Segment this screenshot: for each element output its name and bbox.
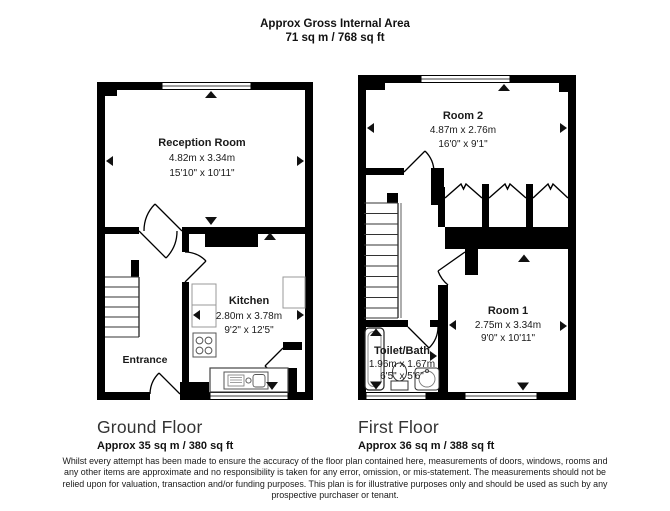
arrow-right-icon bbox=[560, 123, 567, 133]
closet-bifold-door bbox=[445, 184, 482, 198]
kitchen-counter-right bbox=[283, 277, 305, 308]
reception-room-name: Reception Room bbox=[158, 137, 246, 149]
first-floor-title: First Floor bbox=[358, 417, 439, 438]
room2-imperial: 16'0" x 9'1" bbox=[438, 139, 488, 150]
plan-title-line2: 71 sq m / 768 sq ft bbox=[0, 31, 670, 45]
room2-name: Room 2 bbox=[443, 110, 483, 122]
ground-floor-plan: Reception Room 4.82m x 3.34m 15'10" x 10… bbox=[97, 82, 313, 400]
ground-floor-area: Approx 35 sq m / 380 sq ft bbox=[97, 440, 233, 452]
kitchen-sink-counter bbox=[210, 368, 288, 392]
room2-window bbox=[421, 76, 510, 83]
room1-window bbox=[465, 393, 537, 400]
disclaimer-line4: prospective purchaser or tenant. bbox=[15, 490, 655, 501]
disclaimer-text: Whilst every attempt has been made to en… bbox=[15, 456, 655, 502]
arrow-left-icon bbox=[106, 156, 113, 166]
arrow-left-icon bbox=[367, 123, 374, 133]
closet-bifold-door bbox=[533, 184, 568, 198]
kitchen-imperial: 9'2" x 12'5" bbox=[224, 325, 274, 336]
ground-floor-stairs bbox=[105, 277, 139, 337]
first-floor-stairs bbox=[364, 203, 401, 318]
toilet-bath-metric: 1.96m x 1.67m bbox=[369, 359, 435, 370]
disclaimer-line3: relied upon for valuation, transaction a… bbox=[15, 479, 655, 490]
room2-metric: 4.87m x 2.76m bbox=[430, 125, 496, 136]
arrow-left-icon bbox=[449, 320, 456, 330]
entrance-name: Entrance bbox=[123, 354, 168, 366]
arrow-right-icon bbox=[297, 310, 304, 320]
arrow-right-icon bbox=[297, 156, 304, 166]
kitchen-door bbox=[185, 252, 206, 282]
kitchen-window bbox=[210, 393, 288, 400]
reception-room-imperial: 15'10" x 10'11" bbox=[169, 168, 235, 179]
kitchen-hob bbox=[193, 333, 216, 357]
kitchen-counter-left bbox=[192, 284, 216, 327]
disclaimer-line2: any other items are approximate and no r… bbox=[15, 467, 655, 478]
toilet-bath-imperial: 6'5" x 5'6" bbox=[380, 371, 424, 382]
arrow-down-icon bbox=[517, 383, 529, 391]
reception-door-upper bbox=[144, 204, 182, 231]
room1-metric: 2.75m x 3.34m bbox=[475, 320, 541, 331]
first-floor-plan: Room 2 4.87m x 2.76m 16'0" x 9'1" Room 1… bbox=[358, 75, 576, 400]
reception-door-lower bbox=[139, 231, 177, 258]
kitchen-name: Kitchen bbox=[229, 295, 270, 307]
toilet-bath-name: Toilet/Bath bbox=[374, 345, 430, 357]
plan-title: Approx Gross Internal Area 71 sq m / 768… bbox=[0, 17, 670, 45]
front-door bbox=[150, 373, 180, 394]
room1-door bbox=[438, 252, 465, 285]
reception-room-metric: 4.82m x 3.34m bbox=[169, 153, 235, 164]
arrow-down-icon bbox=[205, 217, 217, 225]
arrow-right-icon bbox=[560, 321, 567, 331]
closet-bifold-door bbox=[489, 184, 526, 198]
reception-window bbox=[162, 83, 251, 90]
first-floor-area: Approx 36 sq m / 388 sq ft bbox=[358, 440, 494, 452]
arrow-up-icon bbox=[498, 84, 510, 91]
arrow-up-icon bbox=[518, 255, 530, 263]
disclaimer-line1: Whilst every attempt has been made to en… bbox=[15, 456, 655, 467]
kitchen-metric: 2.80m x 3.78m bbox=[216, 311, 282, 322]
bathroom-window bbox=[366, 393, 426, 400]
room2-door bbox=[404, 151, 434, 172]
arrow-up-icon bbox=[205, 91, 217, 98]
plan-title-line1: Approx Gross Internal Area bbox=[0, 17, 670, 31]
room1-name: Room 1 bbox=[488, 305, 528, 317]
room2-closets bbox=[445, 184, 568, 198]
ground-floor-title: Ground Floor bbox=[97, 417, 203, 438]
room1-imperial: 9'0" x 10'11" bbox=[481, 333, 536, 344]
